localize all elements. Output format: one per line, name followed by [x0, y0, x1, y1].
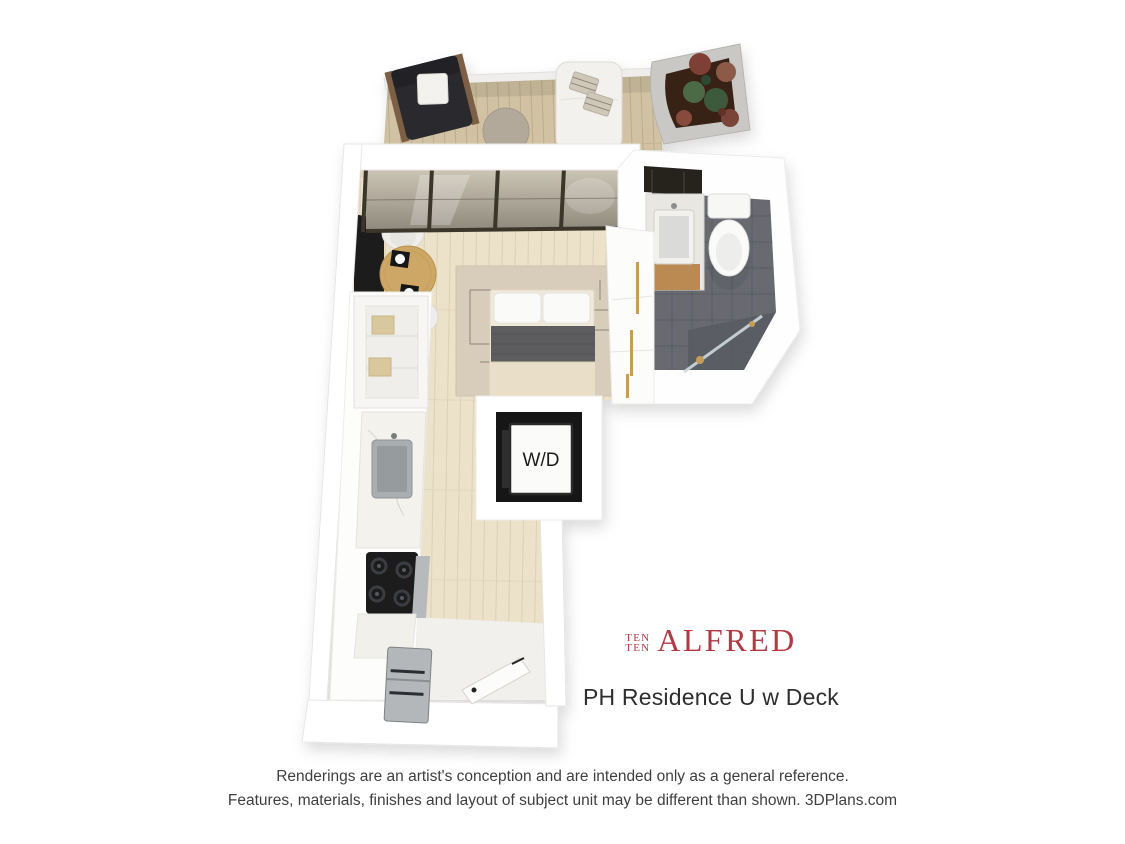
refrigerator [384, 647, 432, 723]
branding-block: TEN TEN ALFRED PH Residence U w Deck [566, 622, 856, 711]
floor-plan-page: W/D TEN TEN ALFRED PH Residence U w Deck… [0, 0, 1125, 844]
washer-dryer-label: W/D [523, 450, 560, 471]
closet-handle [636, 262, 639, 314]
unit-title: PH Residence U w Deck [566, 684, 856, 711]
toilet-tank [708, 194, 750, 218]
pillow [543, 293, 590, 323]
closet [606, 226, 654, 404]
shelf-unit [354, 296, 428, 408]
window-wall [363, 168, 634, 232]
closet-handle [630, 330, 633, 376]
door-handle [472, 688, 477, 693]
kitchen-sink [372, 433, 412, 498]
building-logo: TEN TEN ALFRED [566, 622, 856, 659]
decor-box [369, 358, 391, 376]
planter [651, 44, 751, 144]
placemat [390, 250, 410, 268]
disclaimer-line1: Renderings are an artist's conception an… [0, 765, 1125, 789]
laundry-closet: W/D [476, 396, 602, 520]
vanity-cabinet [650, 264, 700, 290]
vanity-mirror [644, 166, 702, 196]
vanity [646, 194, 704, 290]
cooktop [366, 552, 418, 614]
faucet [671, 203, 677, 209]
bottom-wall [302, 700, 558, 748]
toilet [707, 194, 751, 290]
floor-plan-rendering: W/D [0, 0, 1125, 844]
disclaimer: Renderings are an artist's conception an… [0, 765, 1125, 812]
logo-name: ALFRED [657, 622, 796, 659]
shower-hinge [749, 321, 755, 327]
shower-handle [696, 356, 704, 364]
closet-handle [626, 374, 629, 398]
disclaimer-line2: Features, materials, finishes and layout… [0, 789, 1125, 813]
pillow [494, 293, 541, 323]
top-wall [344, 144, 640, 170]
lounge-chair [556, 62, 622, 150]
throw-pillow [417, 73, 448, 104]
faucet [391, 433, 397, 439]
logo-prefix-line2: TEN [625, 643, 650, 653]
decor-box [372, 316, 394, 334]
logo-prefix: TEN TEN [625, 633, 650, 653]
